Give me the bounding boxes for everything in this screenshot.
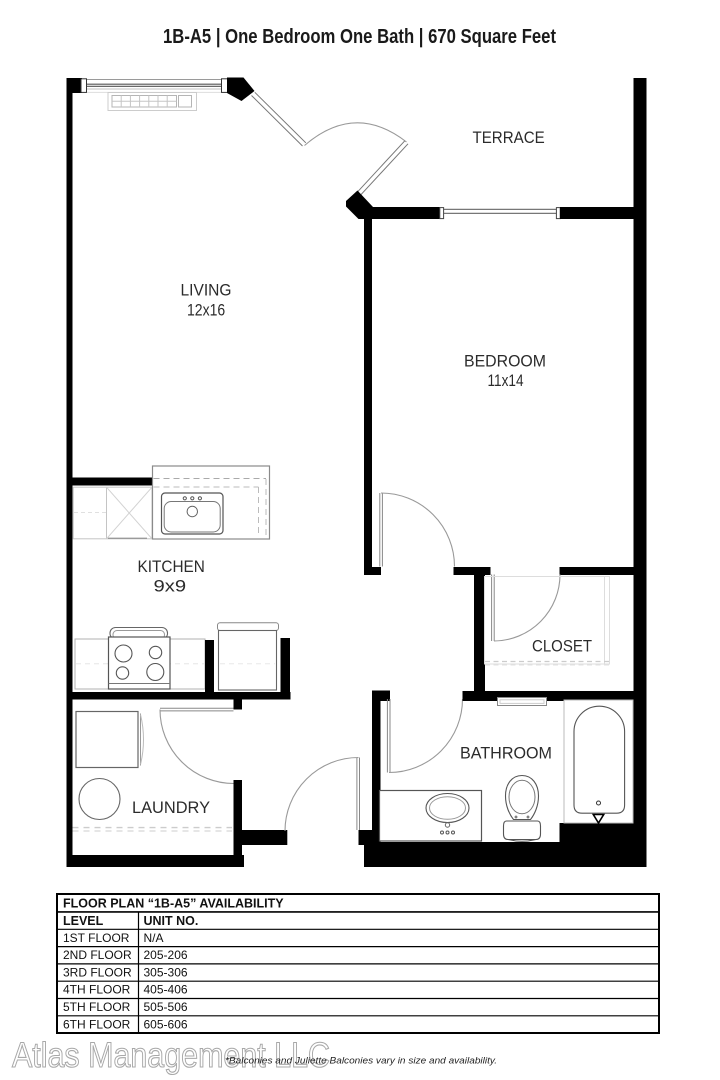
svg-text:1B-A5 | One Bedroom One Bath: 1B-A5 | One Bedroom One Bath | 670 Squar… — [163, 26, 556, 48]
svg-text:BEDROOM: BEDROOM — [464, 351, 546, 370]
svg-text:9x9: 9x9 — [154, 577, 187, 596]
svg-text:6TH FLOOR: 6TH FLOOR — [63, 1017, 131, 1031]
svg-text:5TH FLOOR: 5TH FLOOR — [63, 1000, 131, 1014]
svg-text:BATHROOM: BATHROOM — [460, 743, 552, 762]
svg-text:505-506: 505-506 — [144, 1000, 188, 1014]
svg-text:1ST FLOOR: 1ST FLOOR — [63, 931, 130, 945]
svg-text:LIVING: LIVING — [181, 281, 232, 300]
svg-text:405-406: 405-406 — [144, 983, 188, 997]
svg-text:UNIT NO.: UNIT NO. — [144, 914, 199, 928]
svg-text:KITCHEN: KITCHEN — [138, 557, 205, 576]
svg-text:TERRACE: TERRACE — [473, 128, 545, 147]
svg-text:305-306: 305-306 — [144, 965, 188, 979]
svg-text:2ND FLOOR: 2ND FLOOR — [63, 948, 132, 962]
svg-text:LAUNDRY: LAUNDRY — [132, 798, 210, 817]
svg-text:12x16: 12x16 — [187, 301, 225, 320]
svg-text:CLOSET: CLOSET — [532, 636, 592, 655]
svg-text:205-206: 205-206 — [144, 948, 188, 962]
svg-text:3RD FLOOR: 3RD FLOOR — [63, 965, 132, 979]
svg-text:LEVEL: LEVEL — [63, 914, 104, 928]
svg-text:11x14: 11x14 — [488, 371, 524, 390]
svg-text:N/A: N/A — [144, 931, 164, 945]
svg-text:FLOOR PLAN “1B-A5” AVAILABILIT: FLOOR PLAN “1B-A5” AVAILABILITY — [63, 896, 284, 910]
svg-text:*Balconies and Juliette Balcon: *Balconies and Juliette Balconies vary i… — [225, 1056, 497, 1066]
svg-text:605-606: 605-606 — [144, 1017, 188, 1031]
svg-text:4TH FLOOR: 4TH FLOOR — [63, 983, 131, 997]
